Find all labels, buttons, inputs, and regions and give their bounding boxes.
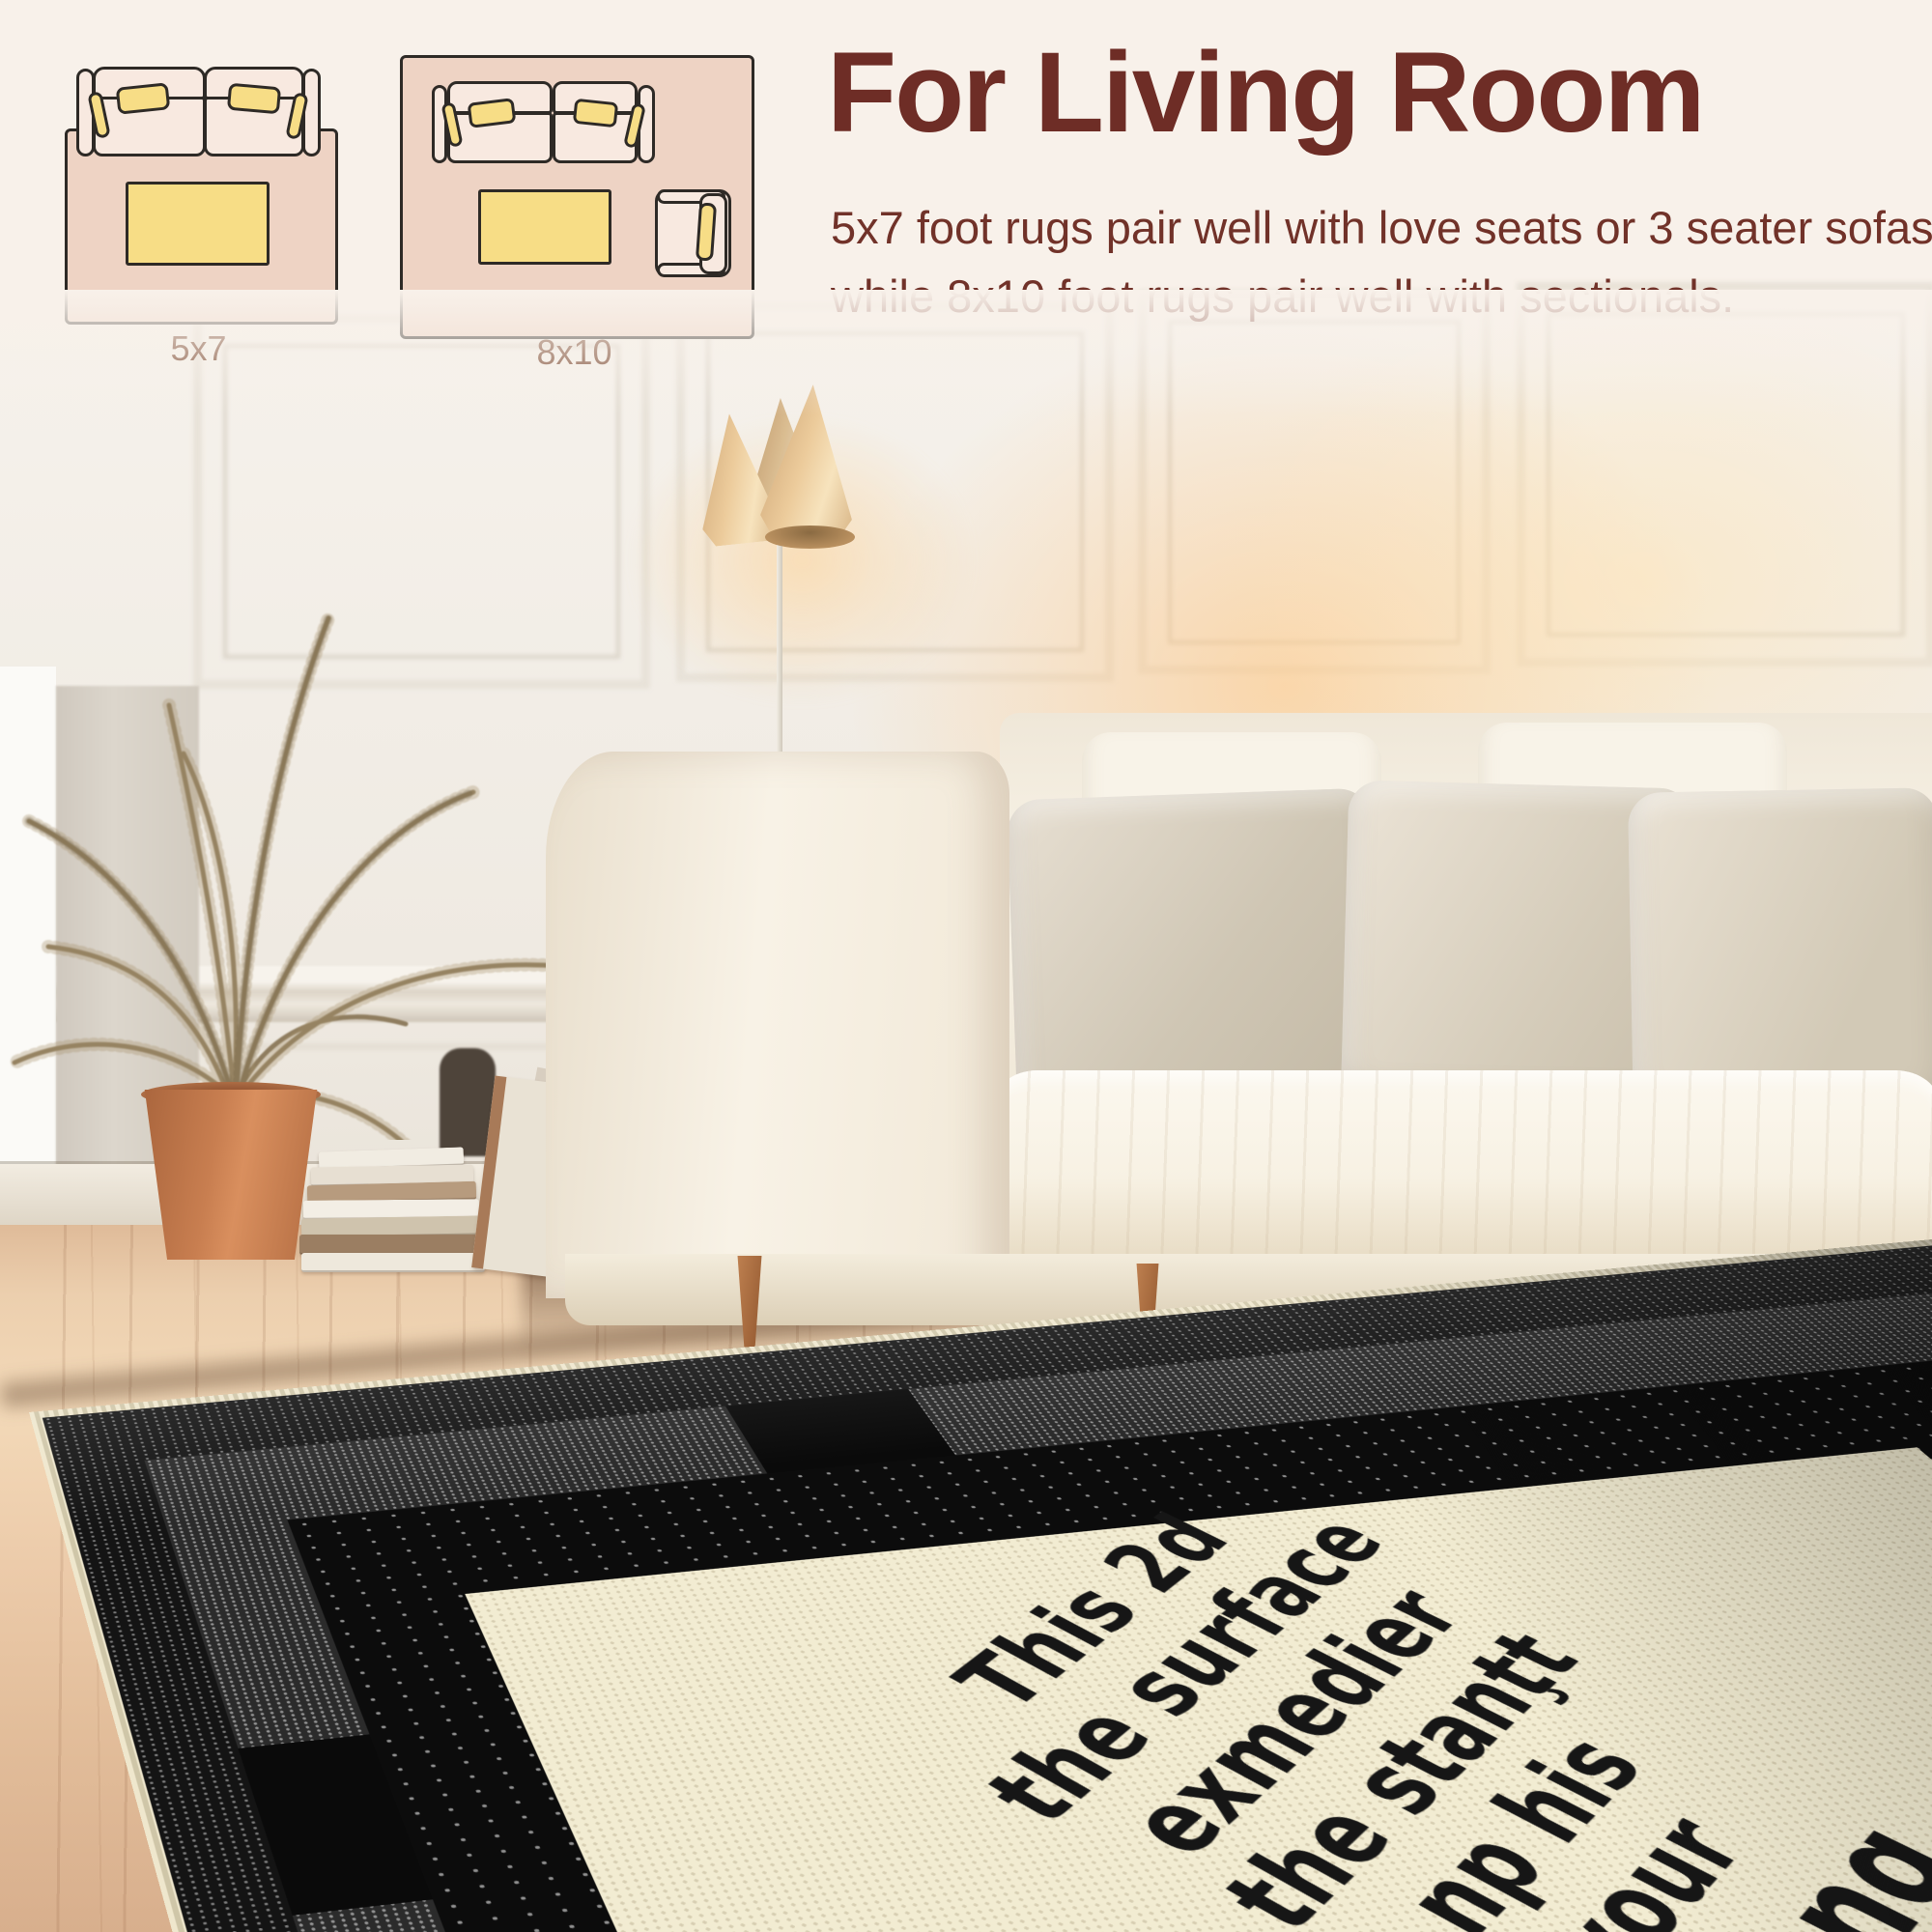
rug-cream-field: This 2d the surface exmedier the stanţt … [465, 1447, 1932, 1932]
floor-lamp-pole [777, 533, 782, 781]
rug-speckled-band: This 2d the surface exmedier the stanţt … [144, 1290, 1932, 1932]
product-image: This 2d the surface exmedier the stanţt … [0, 0, 1932, 1932]
rug-dotted-black-band: This 2d the surface exmedier the stanţt … [287, 1359, 1932, 1932]
section-heading: For Living Room [827, 27, 1909, 158]
pillow-icon [116, 82, 171, 114]
coffee-table-icon [126, 182, 270, 266]
sofa-seat-cushion [993, 1070, 1932, 1267]
photo-top-fade [0, 290, 1932, 415]
pillow-icon [227, 83, 281, 115]
coffee-table-icon [478, 189, 611, 265]
stacked-book [299, 1235, 485, 1255]
terracotta-plant-pot [137, 1090, 325, 1260]
lamp-shade-rim [765, 526, 855, 549]
pillow-icon [573, 99, 618, 128]
rug-printed-text: This 2d the surface exmedier the stanţt … [865, 1459, 1932, 1932]
sofa-armrest [546, 752, 1009, 1298]
stacked-book [301, 1253, 485, 1272]
